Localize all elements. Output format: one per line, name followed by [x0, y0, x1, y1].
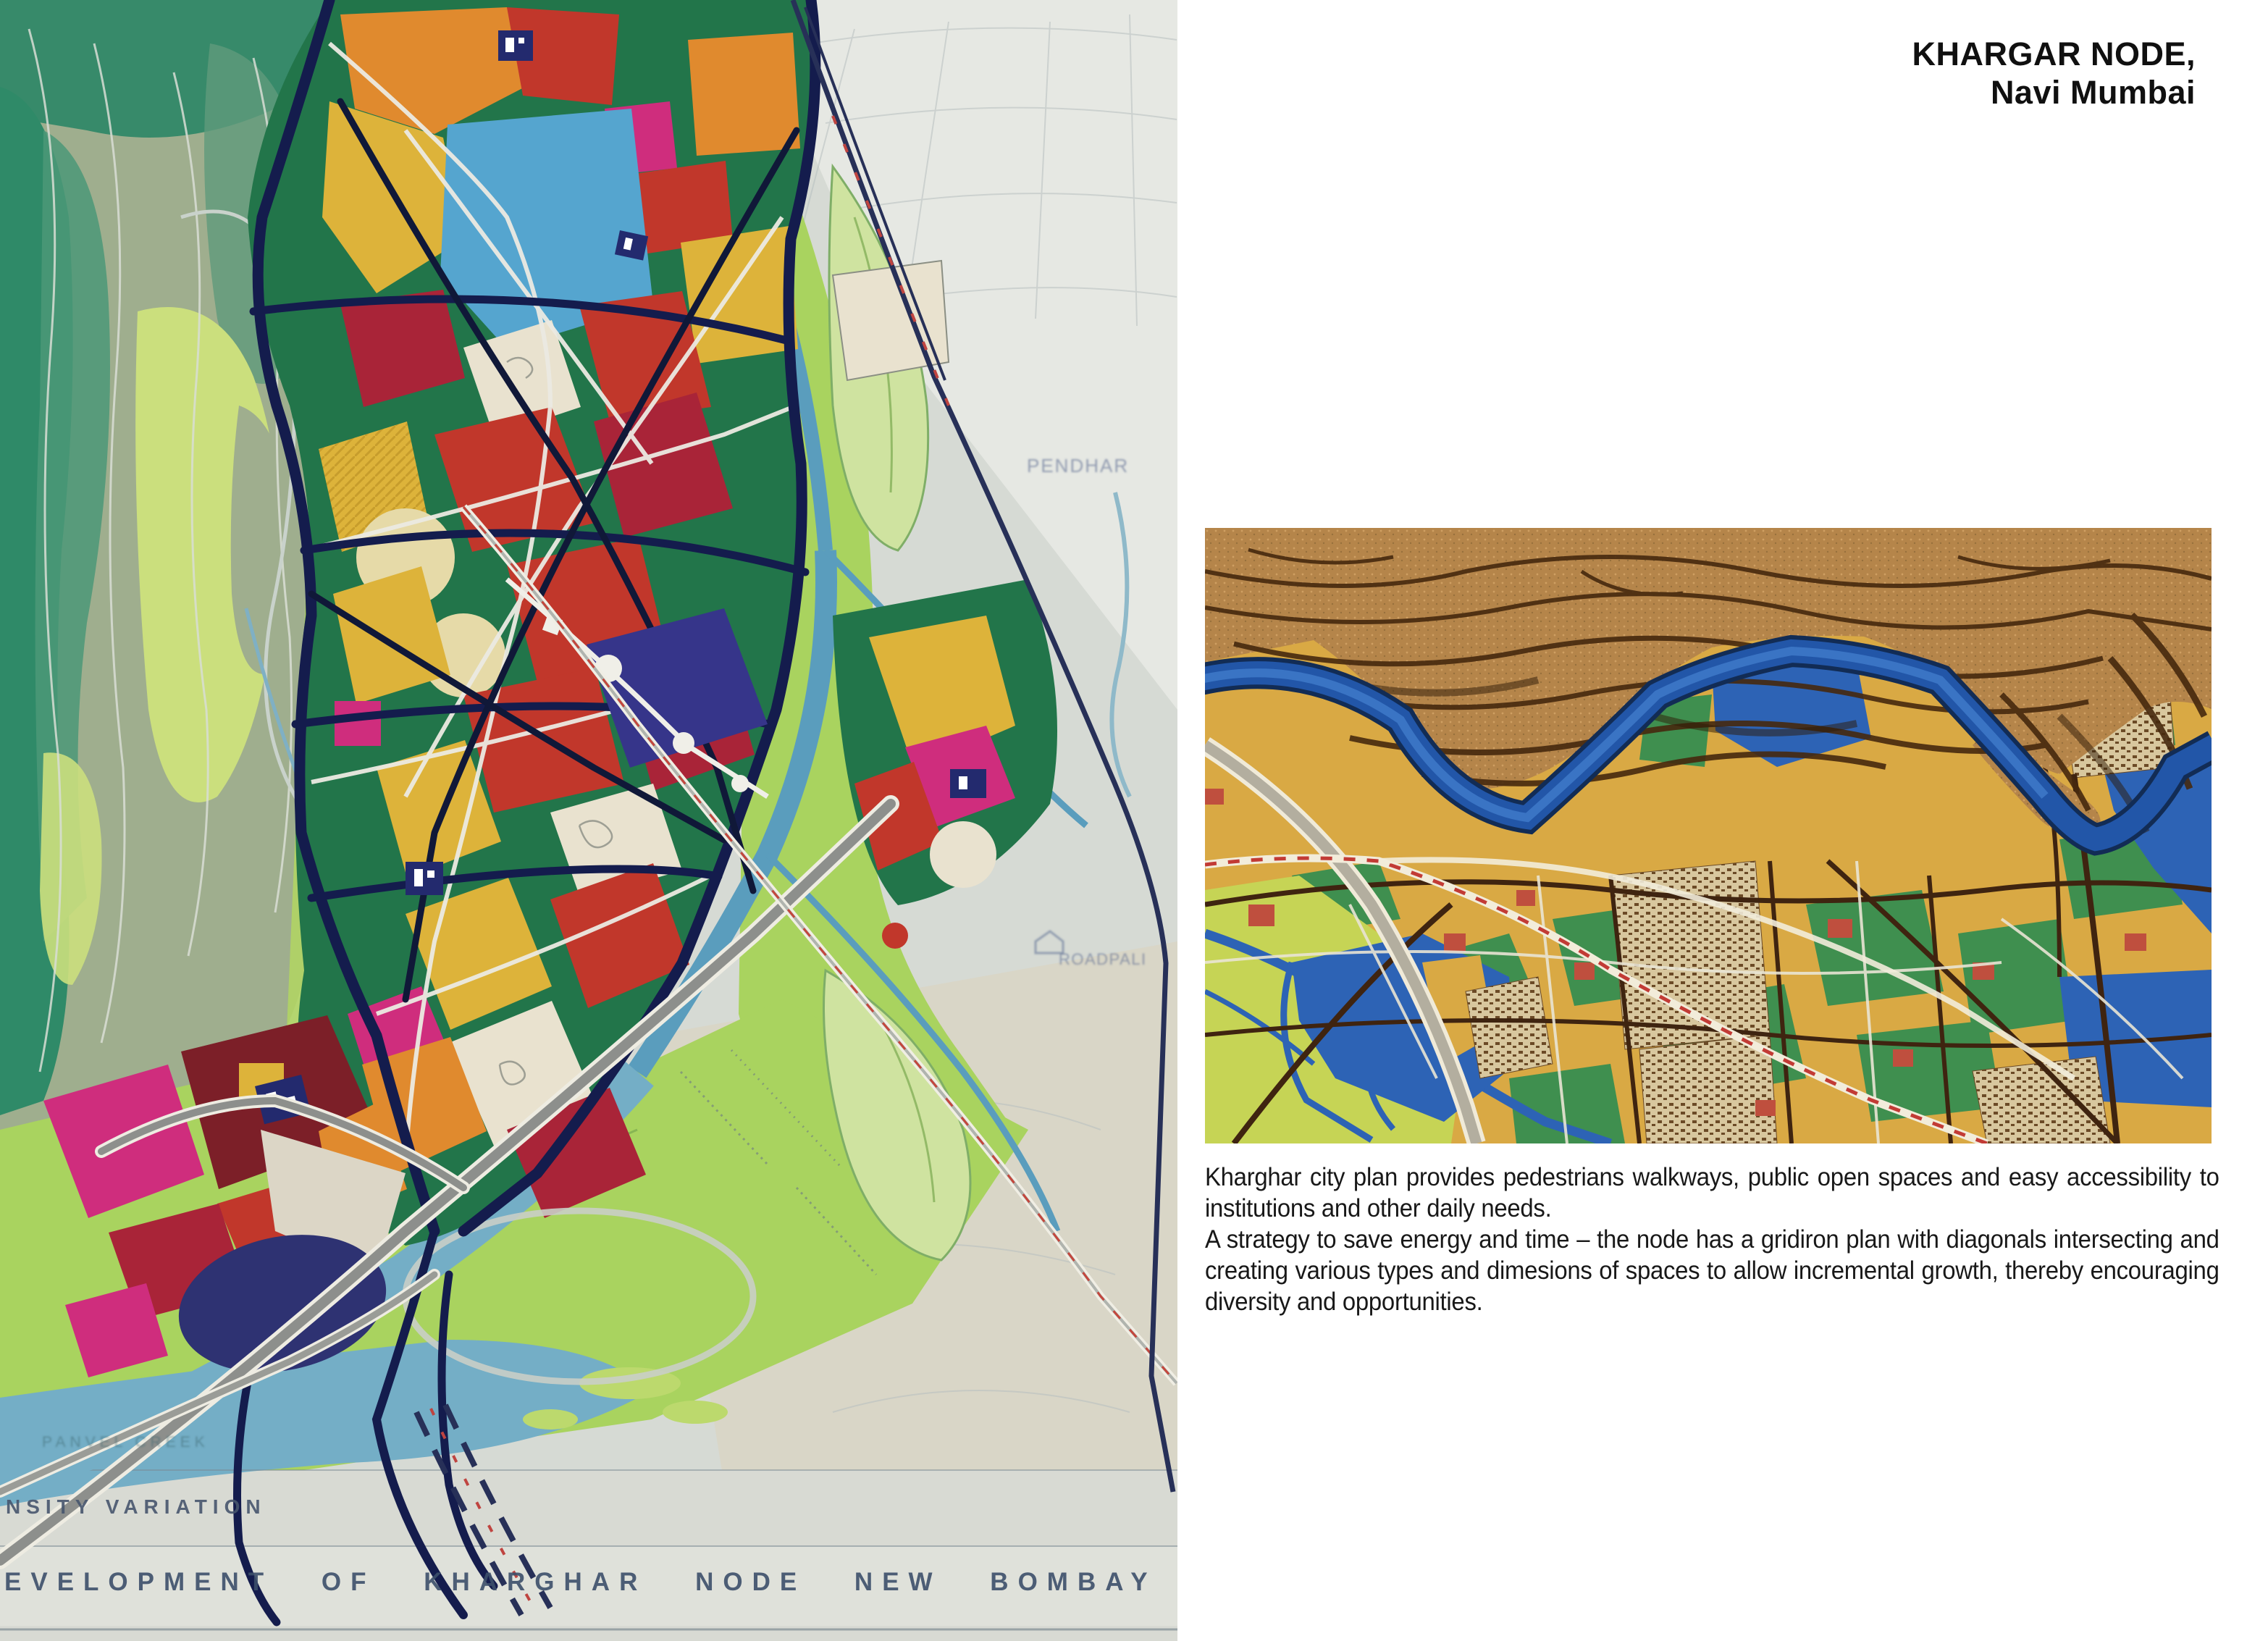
map-label-pendhar: PENDHAR: [1027, 455, 1129, 477]
page: PENDHAR ROADPALI PANVEL CREEK NSITY VARI…: [0, 0, 2268, 1641]
kharghar-model-photo-image: [1205, 528, 2212, 1143]
caption-paragraph-1: Kharghar city plan provides pedestrians …: [1205, 1162, 2219, 1224]
map-label-creek: PANVEL CREEK: [42, 1434, 209, 1451]
page-title: KHARGAR NODE, Navi Mumbai: [1912, 35, 2196, 112]
caption-paragraph-2: A strategy to save energy and time – the…: [1205, 1224, 2219, 1317]
caption-text: Kharghar city plan provides pedestrians …: [1205, 1162, 2219, 1317]
map-footer-density-label: NSITY VARIATION: [6, 1495, 266, 1518]
page-title-line2: Navi Mumbai: [1912, 73, 2196, 112]
map-footer-development-label: EVELOPMENT OF KHARGHAR NODE NEW BOMBAY: [4, 1568, 1157, 1596]
kharghar-land-use-map-image: PENDHAR ROADPALI PANVEL CREEK NSITY VARI…: [0, 0, 1177, 1641]
map-label-roadpali: ROADPALI: [1059, 950, 1147, 968]
page-title-line1: KHARGAR NODE,: [1912, 35, 2196, 73]
